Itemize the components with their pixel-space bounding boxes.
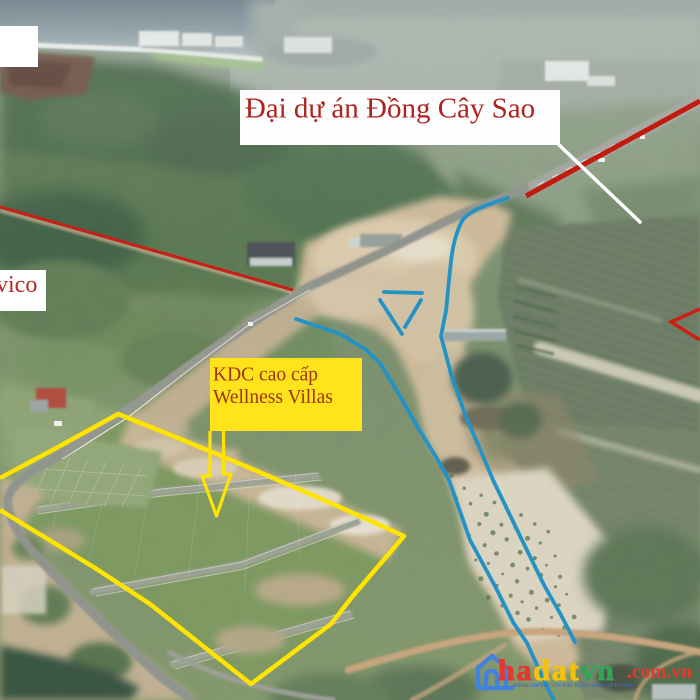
svg-text:Wellness Villas: Wellness Villas bbox=[213, 387, 333, 408]
svg-text:Đại dự án Đồng Cây Sao: Đại dự án Đồng Cây Sao bbox=[245, 93, 535, 125]
svg-text:.com.vn: .com.vn bbox=[627, 662, 692, 683]
svg-text:KÊNH THÔNG TIN BẤT ĐỘNG SẢN VI: KÊNH THÔNG TIN BẤT ĐỘNG SẢN VIỆT NAM bbox=[513, 681, 632, 689]
svg-text:KDC cao cấp: KDC cao cấp bbox=[213, 365, 318, 386]
svg-text:vico: vico bbox=[0, 272, 37, 298]
